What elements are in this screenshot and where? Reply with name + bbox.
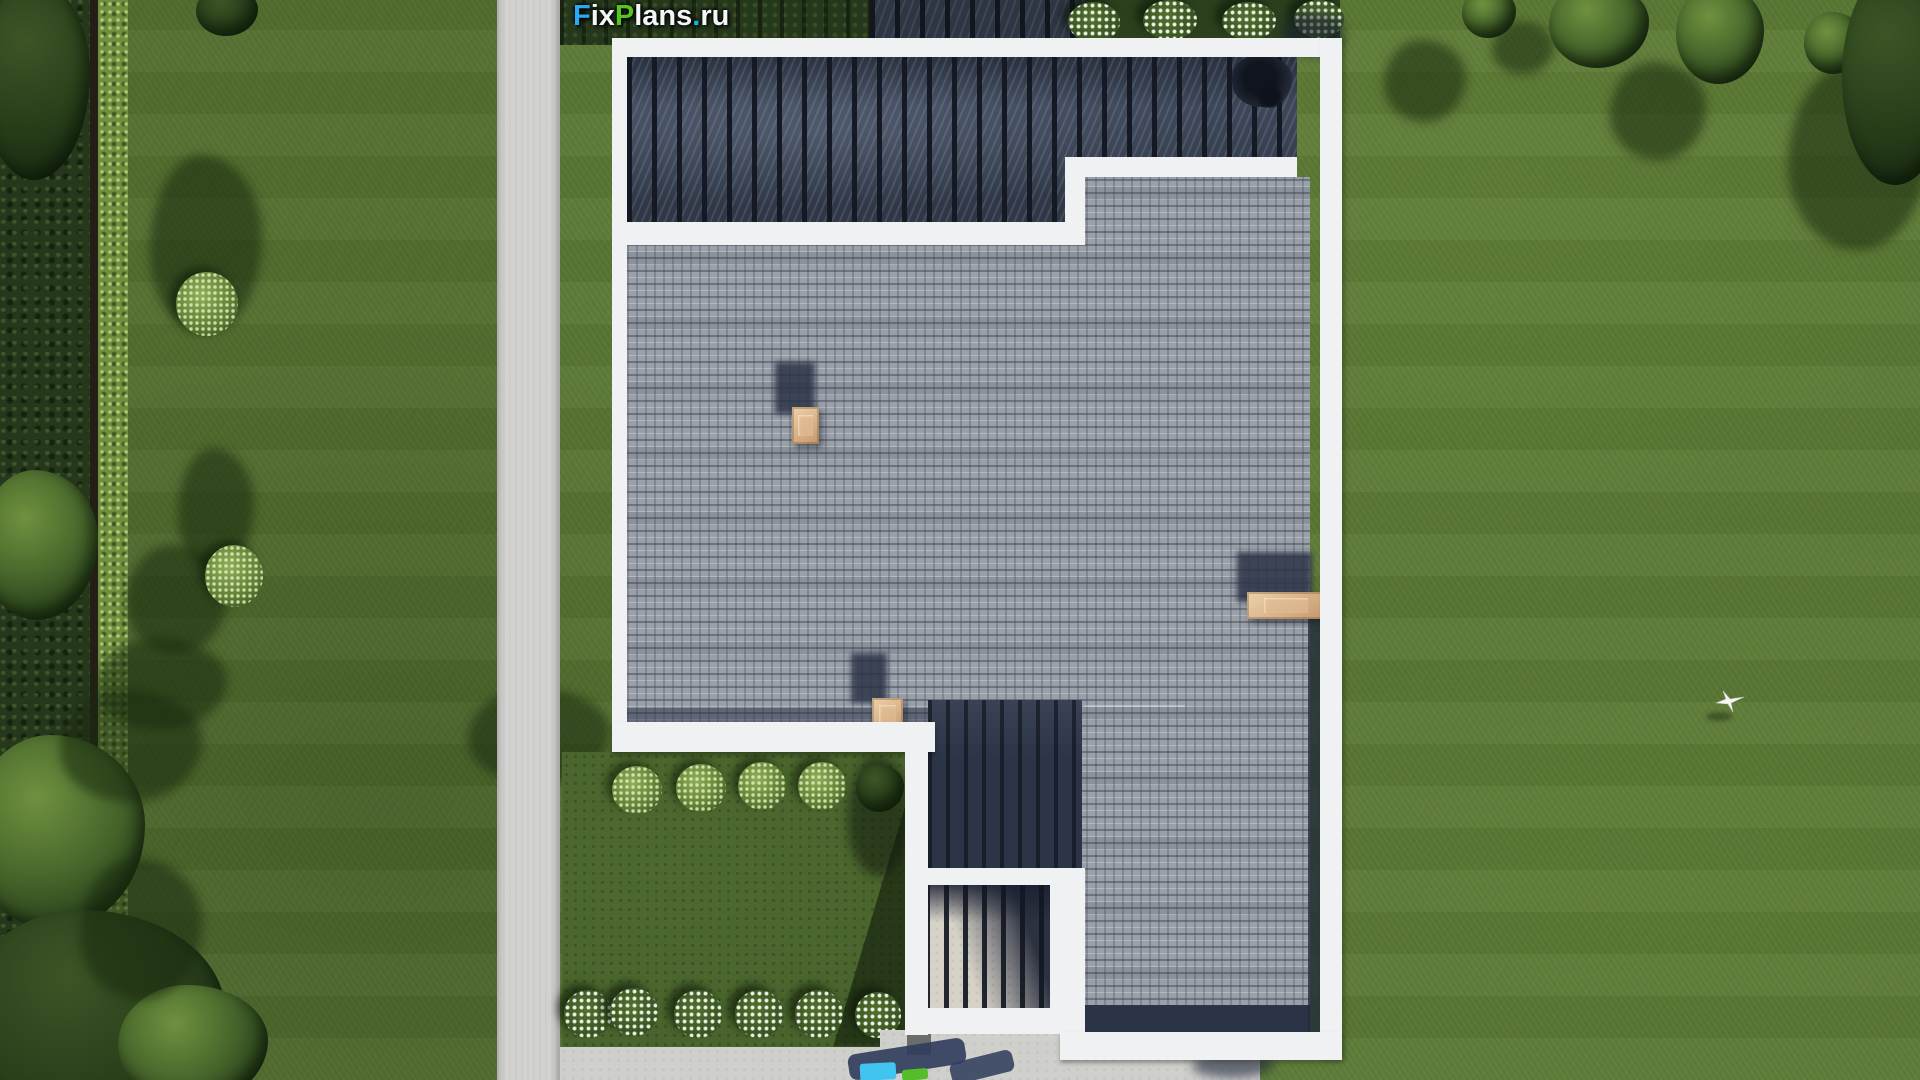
aerial-house-render: FixPlans.ru xyxy=(0,0,1920,1080)
flower-bush xyxy=(1222,2,1276,40)
chimney-vent xyxy=(792,407,819,444)
watermark-letter-p: P xyxy=(615,0,634,32)
flower-bush xyxy=(674,990,722,1038)
bush xyxy=(176,272,238,336)
flower-bush xyxy=(564,990,612,1038)
flower-bush xyxy=(735,990,783,1038)
watermark-cyan-fragment xyxy=(860,1062,897,1080)
bird xyxy=(1714,690,1746,716)
bush xyxy=(798,762,846,810)
roof-seam xyxy=(1085,705,1185,707)
bush xyxy=(676,764,726,812)
bush xyxy=(612,766,662,814)
flower-bush xyxy=(1068,2,1120,42)
parapet-step xyxy=(1065,157,1085,245)
watermark-green-fragment xyxy=(902,1068,929,1080)
parapet-left xyxy=(612,38,627,752)
chimney-shadow xyxy=(851,653,887,703)
parapet-bottom xyxy=(1060,1032,1342,1060)
bush xyxy=(738,762,786,810)
flower-bush xyxy=(610,988,658,1036)
flower-bush xyxy=(1143,0,1197,40)
parapet-bed-right xyxy=(905,745,928,1035)
watermark-letter-f: F xyxy=(573,0,591,32)
parapet-notch-top xyxy=(612,722,935,752)
parapet-top xyxy=(612,38,1335,57)
parapet-porch-bottom xyxy=(905,1008,1085,1034)
garden-path xyxy=(497,0,560,1080)
parapet-right xyxy=(1320,38,1342,1060)
bush xyxy=(205,545,263,607)
parapet-pergola-bottom xyxy=(1068,157,1297,177)
parapet-pergola-bottom xyxy=(612,222,1068,245)
chimney-vent xyxy=(1247,592,1325,619)
entry-canopy-slats xyxy=(928,700,1082,868)
patio-furniture xyxy=(1253,86,1287,108)
entry-porch xyxy=(925,885,1050,1008)
flower-bush xyxy=(795,990,843,1038)
roof-edge-shading xyxy=(1073,1005,1310,1032)
watermark-top: FixPlans.ru xyxy=(573,1,729,31)
